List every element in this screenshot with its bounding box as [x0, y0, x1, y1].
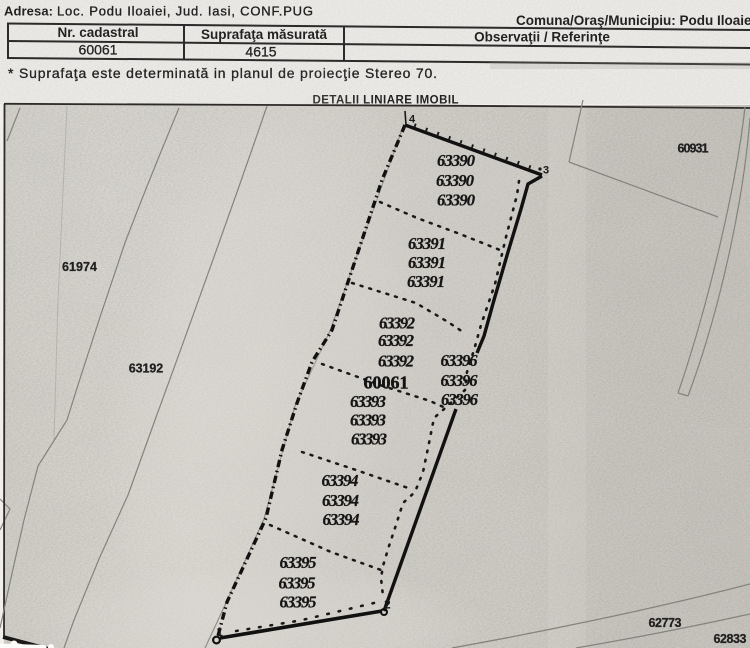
svg-text:62773: 62773: [649, 616, 682, 630]
svg-text:63391: 63391: [407, 272, 445, 291]
svg-text:63395: 63395: [280, 593, 317, 612]
svg-text:63192: 63192: [129, 362, 164, 376]
svg-text:63390: 63390: [436, 171, 474, 190]
svg-text:63395: 63395: [279, 574, 316, 593]
svg-text:63396: 63396: [441, 390, 479, 409]
svg-text:63394: 63394: [323, 510, 360, 529]
svg-text:63394: 63394: [322, 471, 359, 490]
svg-text:63394: 63394: [322, 491, 359, 510]
svg-text:2: 2: [384, 598, 391, 612]
svg-text:63390: 63390: [437, 191, 475, 210]
svg-text:63393: 63393: [351, 430, 387, 449]
svg-text:63393: 63393: [350, 392, 386, 411]
svg-text:63392: 63392: [379, 314, 415, 333]
svg-text:63391: 63391: [408, 253, 446, 272]
svg-text:63392: 63392: [378, 331, 414, 350]
svg-text:63391: 63391: [408, 234, 446, 253]
svg-text:3: 3: [543, 165, 549, 177]
svg-text:63392: 63392: [378, 352, 414, 371]
svg-text:60061: 60061: [364, 373, 409, 393]
svg-text:4: 4: [409, 114, 416, 126]
svg-text:63396: 63396: [441, 371, 479, 390]
svg-text:63396: 63396: [441, 351, 479, 370]
svg-text:60931: 60931: [678, 142, 709, 156]
svg-text:1: 1: [217, 627, 224, 639]
svg-text:61974: 61974: [62, 260, 97, 274]
svg-text:63390: 63390: [437, 151, 475, 170]
svg-text:62833: 62833: [714, 632, 747, 646]
svg-text:63395: 63395: [280, 553, 317, 572]
svg-text:63393: 63393: [350, 411, 386, 430]
